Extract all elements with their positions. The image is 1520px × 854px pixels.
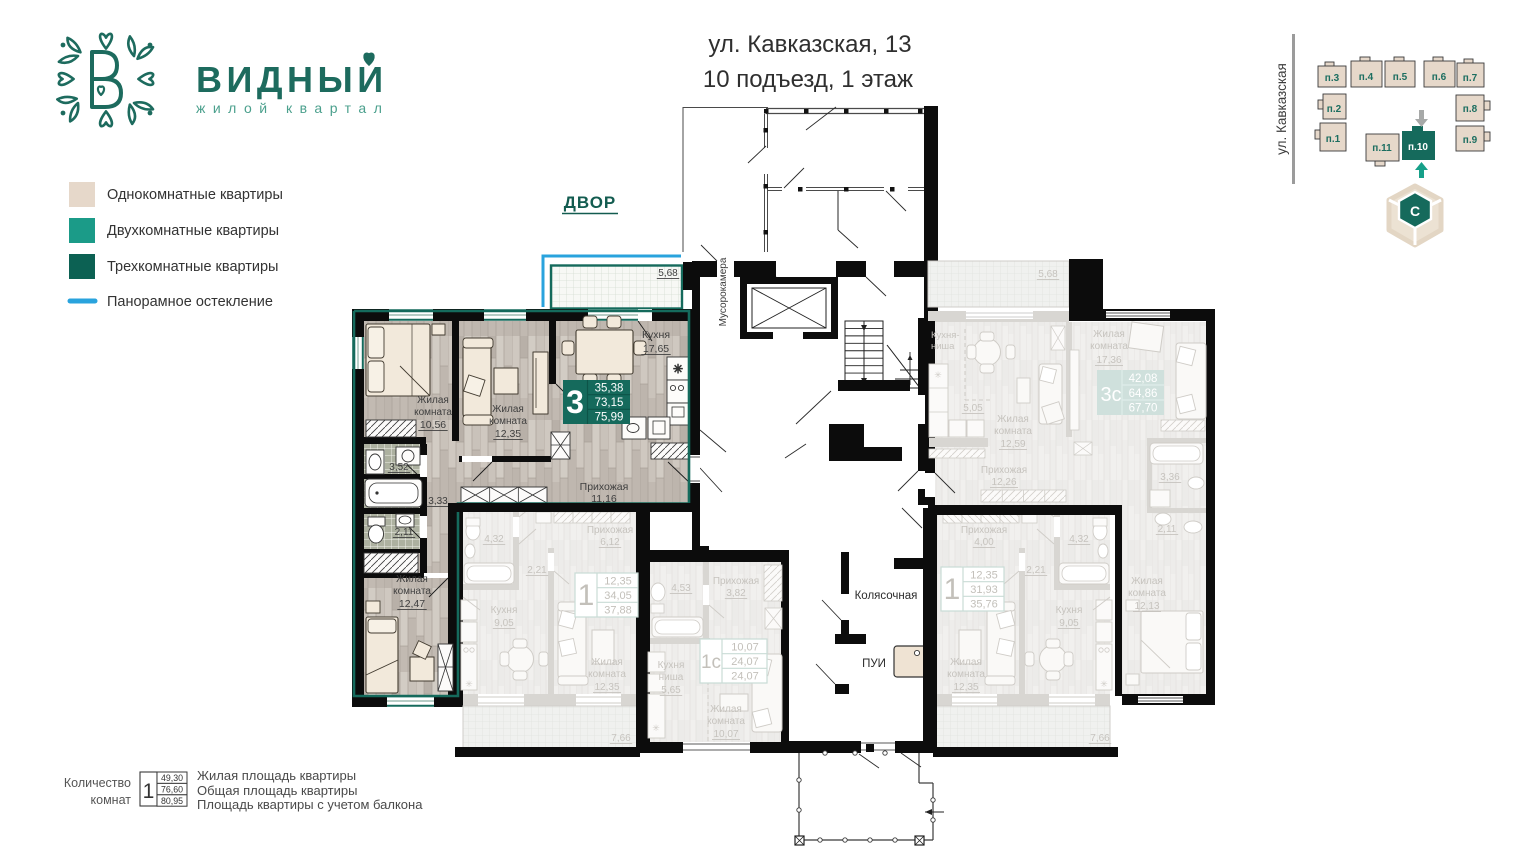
svg-text:7,66: 7,66 bbox=[1090, 733, 1110, 744]
svg-text:4,00: 4,00 bbox=[974, 537, 994, 548]
svg-text:Кухня: Кухня bbox=[658, 660, 685, 671]
svg-text:Прихожая: Прихожая bbox=[961, 525, 1007, 536]
svg-text:10,07: 10,07 bbox=[731, 642, 759, 654]
svg-text:5,65: 5,65 bbox=[661, 685, 681, 696]
svg-text:Трехкомнатные квартиры: Трехкомнатные квартиры bbox=[107, 259, 278, 275]
svg-text:73,15: 73,15 bbox=[595, 397, 624, 409]
svg-text:1: 1 bbox=[944, 573, 961, 606]
svg-text:12,13: 12,13 bbox=[1134, 601, 1159, 612]
svg-text:35,76: 35,76 bbox=[970, 599, 998, 611]
svg-text:Жилая: Жилая bbox=[950, 657, 982, 668]
svg-text:Жилая: Жилая bbox=[1131, 576, 1163, 587]
svg-text:п.10: п.10 bbox=[1408, 142, 1428, 153]
svg-text:ул. Кавказская, 13: ул. Кавказская, 13 bbox=[708, 31, 911, 58]
svg-text:Жилая: Жилая bbox=[710, 704, 742, 715]
svg-text:12,59: 12,59 bbox=[1000, 439, 1025, 450]
svg-text:ниша: ниша bbox=[931, 341, 955, 352]
svg-text:34,05: 34,05 bbox=[604, 590, 632, 602]
svg-text:75,99: 75,99 bbox=[595, 412, 624, 424]
svg-text:64,86: 64,86 bbox=[1129, 388, 1158, 400]
svg-text:Жилая: Жилая bbox=[492, 404, 524, 415]
svg-text:Кухня: Кухня bbox=[1056, 605, 1083, 616]
svg-text:17,65: 17,65 bbox=[643, 343, 669, 355]
svg-text:комната: комната bbox=[489, 416, 527, 427]
svg-text:комната: комната bbox=[414, 407, 452, 418]
svg-text:24,07: 24,07 bbox=[731, 671, 759, 683]
svg-text:комната: комната bbox=[393, 586, 431, 597]
svg-text:Общая площадь квартиры: Общая площадь квартиры bbox=[197, 783, 357, 798]
svg-text:Прихожая: Прихожая bbox=[713, 576, 759, 587]
svg-text:1: 1 bbox=[143, 780, 155, 803]
svg-text:жилой квартал: жилой квартал bbox=[196, 100, 389, 116]
svg-text:1с: 1с bbox=[701, 652, 721, 673]
svg-text:67,70: 67,70 bbox=[1129, 403, 1158, 415]
svg-text:ниша: ниша bbox=[659, 672, 684, 683]
svg-text:12,26: 12,26 bbox=[991, 477, 1016, 488]
svg-text:п.11: п.11 bbox=[1372, 143, 1392, 154]
svg-text:Жилая: Жилая bbox=[396, 574, 428, 585]
svg-text:С: С bbox=[1410, 203, 1420, 219]
svg-text:✳: ✳ bbox=[465, 679, 473, 689]
svg-text:Жилая: Жилая bbox=[997, 414, 1029, 425]
svg-text:Площадь квартиры с учетом балк: Площадь квартиры с учетом балкона bbox=[197, 797, 423, 812]
svg-text:12,35: 12,35 bbox=[594, 682, 619, 693]
svg-text:37,88: 37,88 bbox=[604, 605, 632, 617]
svg-text:6,12: 6,12 bbox=[600, 537, 620, 548]
svg-text:31,93: 31,93 bbox=[970, 584, 998, 596]
svg-text:2,21: 2,21 bbox=[527, 565, 547, 576]
svg-text:ДВОР: ДВОР bbox=[564, 193, 617, 212]
svg-text:комната: комната bbox=[1090, 341, 1128, 352]
svg-text:✳: ✳ bbox=[934, 370, 942, 380]
svg-text:2,21: 2,21 bbox=[1026, 565, 1046, 576]
svg-text:комнат: комнат bbox=[91, 793, 132, 807]
svg-text:Количество: Количество bbox=[64, 776, 131, 790]
svg-text:✳: ✳ bbox=[652, 723, 660, 733]
svg-text:12,35: 12,35 bbox=[953, 682, 978, 693]
svg-text:Мусорокамера: Мусорокамера bbox=[718, 257, 729, 326]
svg-text:9,05: 9,05 bbox=[1059, 618, 1079, 629]
svg-text:✳: ✳ bbox=[673, 362, 683, 376]
svg-text:3,82: 3,82 bbox=[726, 588, 746, 599]
svg-text:комната: комната bbox=[947, 669, 985, 680]
svg-text:3,33: 3,33 bbox=[428, 496, 448, 507]
svg-text:п.2: п.2 bbox=[1327, 104, 1342, 115]
svg-text:комната: комната bbox=[1128, 588, 1166, 599]
svg-text:10 подъезд, 1 этаж: 10 подъезд, 1 этаж bbox=[703, 66, 913, 93]
svg-text:Панорамное остекление: Панорамное остекление bbox=[107, 294, 273, 310]
svg-text:10,07: 10,07 bbox=[713, 729, 738, 740]
svg-text:Жилая площадь квартиры: Жилая площадь квартиры bbox=[197, 768, 356, 783]
svg-text:12,35: 12,35 bbox=[970, 570, 998, 582]
svg-text:4,53: 4,53 bbox=[671, 583, 691, 594]
svg-text:3: 3 bbox=[566, 384, 584, 420]
svg-text:35,38: 35,38 bbox=[595, 383, 624, 395]
svg-text:Двухкомнатные квартиры: Двухкомнатные квартиры bbox=[107, 223, 279, 239]
svg-text:9,05: 9,05 bbox=[494, 618, 514, 629]
svg-text:12,47: 12,47 bbox=[399, 598, 425, 610]
svg-text:Жилая: Жилая bbox=[417, 395, 449, 406]
svg-text:п.5: п.5 bbox=[1393, 72, 1408, 83]
svg-text:76,60: 76,60 bbox=[161, 784, 183, 794]
svg-text:Жилая: Жилая bbox=[591, 657, 623, 668]
svg-text:ПУИ: ПУИ bbox=[862, 658, 886, 670]
svg-text:10,56: 10,56 bbox=[420, 419, 446, 431]
svg-text:п.4: п.4 bbox=[1359, 72, 1374, 83]
svg-text:7,66: 7,66 bbox=[611, 733, 631, 744]
svg-text:Кухня: Кухня bbox=[491, 605, 518, 616]
svg-text:п.7: п.7 bbox=[1463, 73, 1478, 84]
svg-text:17,36: 17,36 bbox=[1096, 355, 1121, 366]
svg-text:2,11: 2,11 bbox=[395, 527, 414, 538]
svg-text:Кухня-: Кухня- bbox=[931, 330, 960, 341]
svg-text:24,07: 24,07 bbox=[731, 656, 759, 668]
svg-text:3,36: 3,36 bbox=[1160, 472, 1180, 483]
svg-text:ул. Кавказская: ул. Кавказская bbox=[1274, 63, 1289, 155]
svg-text:1: 1 bbox=[578, 579, 595, 612]
svg-text:✳: ✳ bbox=[1100, 679, 1108, 689]
svg-text:5,05: 5,05 bbox=[963, 403, 983, 414]
svg-text:Прихожая: Прихожая bbox=[587, 525, 633, 536]
svg-text:Прихожая: Прихожая bbox=[580, 481, 629, 493]
svg-text:5,68: 5,68 bbox=[658, 268, 678, 279]
svg-text:3,52: 3,52 bbox=[389, 462, 409, 473]
svg-text:3с: 3с bbox=[1100, 384, 1121, 406]
svg-text:Жилая: Жилая bbox=[1093, 329, 1125, 340]
svg-text:п.1: п.1 bbox=[1326, 134, 1341, 145]
svg-text:49,30: 49,30 bbox=[161, 773, 183, 783]
svg-text:42,08: 42,08 bbox=[1129, 373, 1158, 385]
svg-text:п.9: п.9 bbox=[1463, 135, 1478, 146]
svg-text:2,11: 2,11 bbox=[1158, 524, 1177, 535]
svg-text:Колясочная: Колясочная bbox=[855, 590, 918, 602]
svg-text:п.8: п.8 bbox=[1463, 104, 1478, 115]
svg-text:Кухня: Кухня bbox=[642, 329, 670, 341]
svg-text:12,35: 12,35 bbox=[604, 576, 632, 588]
svg-text:4,32: 4,32 bbox=[1069, 534, 1089, 545]
svg-text:80,95: 80,95 bbox=[161, 796, 183, 806]
svg-text:5,68: 5,68 bbox=[1038, 269, 1058, 280]
svg-text:комната: комната bbox=[994, 426, 1032, 437]
svg-text:Прихожая: Прихожая bbox=[981, 465, 1027, 476]
svg-text:п.3: п.3 bbox=[1325, 73, 1340, 84]
svg-text:комната: комната bbox=[707, 716, 745, 727]
svg-text:комната: комната bbox=[588, 669, 626, 680]
svg-text:12,35: 12,35 bbox=[495, 428, 521, 440]
svg-text:4,32: 4,32 bbox=[484, 534, 504, 545]
svg-text:Однокомнатные квартиры: Однокомнатные квартиры bbox=[107, 187, 283, 203]
svg-text:п.6: п.6 bbox=[1432, 72, 1447, 83]
